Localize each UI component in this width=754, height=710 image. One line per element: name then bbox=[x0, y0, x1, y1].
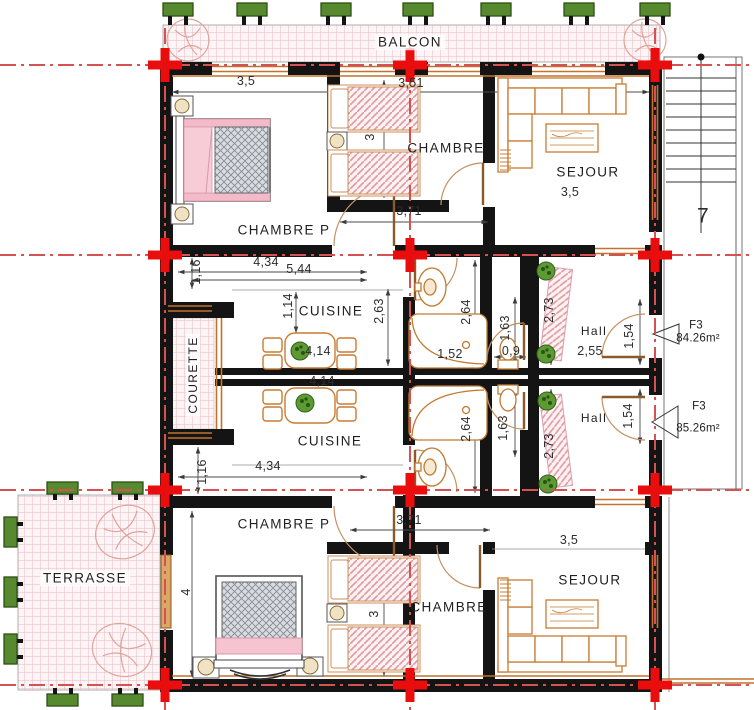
plant-icon bbox=[537, 345, 555, 363]
dim-kitchen-offset: 1,14 bbox=[282, 293, 295, 319]
room-label-sejour-lower: SEJOUR bbox=[558, 573, 621, 587]
room-label-balcon: BALCON bbox=[375, 34, 445, 50]
f3-upper-code: F3 bbox=[689, 320, 703, 332]
room-label-terrasse: TERRASSE bbox=[40, 570, 130, 586]
room-label-courette: COURETTE bbox=[186, 333, 200, 416]
room-label-hall-upper: Hall bbox=[581, 325, 607, 337]
dim-chambre-upper: 3 bbox=[364, 133, 377, 140]
plant-icon bbox=[538, 392, 556, 410]
room-label-sejour-upper: SEJOUR bbox=[556, 165, 619, 179]
dim-corridor-upper: 3,71 bbox=[396, 205, 422, 218]
dim-kitchen-upper-diag: 5,44 bbox=[286, 263, 312, 276]
stair-direction-label: 7 bbox=[697, 206, 709, 227]
dim-loggia-lower: 2,73 bbox=[543, 433, 556, 459]
room-label-chambre-upper: CHAMBRE bbox=[407, 141, 484, 155]
f3-upper-area: 84.26m² bbox=[676, 333, 720, 345]
dim-kitchen-lower-w: 4,34 bbox=[255, 460, 281, 473]
room-label-chambre-p-upper: CHAMBRE P bbox=[238, 223, 331, 237]
dim-sejour-upper: 3,5 bbox=[561, 186, 579, 199]
dim-terrasse-side: 4 bbox=[180, 588, 193, 595]
dim-courette-top: 1,16 bbox=[190, 259, 203, 285]
dim-wc-door: 0,9 bbox=[502, 345, 520, 358]
dim-kitchen-upper-w: 4,34 bbox=[253, 256, 279, 269]
dim-table-upper: 4,14 bbox=[305, 345, 331, 358]
sofa-lower bbox=[498, 578, 626, 672]
dim-balcony-mid: 3,51 bbox=[398, 77, 424, 90]
dim-chambre-lower: 3 bbox=[368, 610, 381, 617]
f3-lower-area: 85.26m² bbox=[676, 423, 720, 435]
dim-hall-upper-w: 2,55 bbox=[577, 345, 603, 358]
sofa-upper bbox=[498, 78, 626, 172]
dim-bath-upper-h: 2,64 bbox=[460, 299, 473, 325]
dim-balcony-left: 3,5 bbox=[237, 75, 255, 88]
room-label-cuisine-lower: CUISINE bbox=[298, 434, 363, 448]
dim-wc-upper: 1,63 bbox=[499, 315, 512, 341]
plan-drawing bbox=[0, 0, 754, 710]
dim-hall-lower-h: 1,54 bbox=[622, 403, 635, 429]
plant-icon bbox=[296, 394, 314, 412]
master-bed-lower bbox=[193, 576, 323, 679]
room-label-chambre-lower: CHAMBRE bbox=[410, 600, 487, 614]
f3-lower-code: F3 bbox=[692, 401, 706, 413]
plant-icon bbox=[537, 262, 555, 280]
room-label-cuisine-upper: CUISINE bbox=[299, 304, 364, 318]
dim-courette-bottom: 1,16 bbox=[196, 459, 209, 485]
room-label-hall-lower: Hall bbox=[581, 412, 607, 424]
dim-hall-upper-h: 1,54 bbox=[623, 323, 636, 349]
dim-bath-lower-h: 2,64 bbox=[460, 416, 473, 442]
dim-loggia-upper: 2,73 bbox=[543, 297, 556, 323]
staircase bbox=[664, 54, 742, 693]
room-label-chambre-p-lower: CHAMBRE P bbox=[238, 517, 331, 531]
dim-kitchen-upper-h: 2,63 bbox=[373, 298, 386, 324]
dim-corridor-lower: 3,71 bbox=[396, 514, 422, 527]
terrasse-hatch bbox=[18, 495, 160, 690]
dim-sejour-lower: 3,5 bbox=[560, 534, 578, 547]
floor-plan: BALCON 3,5 3,51 CHAMBRE SEJOUR 3,5 3 CHA… bbox=[0, 0, 754, 710]
master-bed-upper bbox=[171, 96, 270, 224]
dim-bath-upper-w: 1,52 bbox=[437, 348, 463, 361]
dim-table-lower: 4,14 bbox=[309, 375, 335, 388]
dim-wc-lower: 1,63 bbox=[497, 415, 510, 441]
